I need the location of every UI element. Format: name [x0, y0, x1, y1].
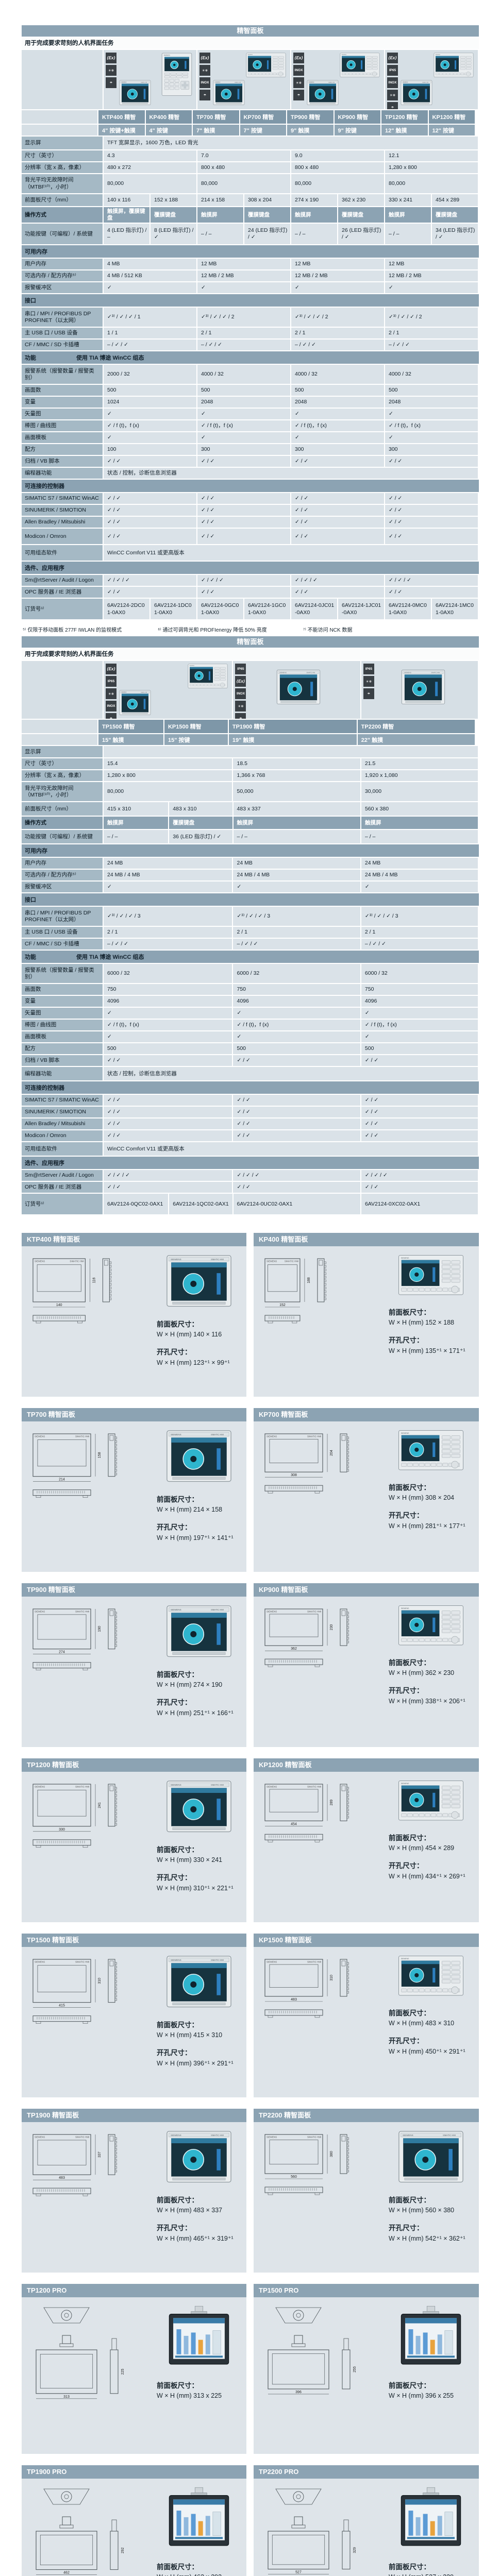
dimension-text: 前面板尺寸：W × H (mm) 396 x 255	[389, 2380, 454, 2399]
card-right-column: SIEMENS SIMATIC HMI 前面板尺寸：W × H (mm) 140…	[155, 1249, 242, 1394]
spec-cell: 覆膜键盘	[432, 207, 479, 223]
spec-row-label: OPC 服务器 / IE 浏览器	[22, 1182, 104, 1193]
cutout-size-value: W × H (mm) 197⁺¹ × 141⁺¹	[157, 1534, 234, 1541]
card-right-column: SIEMENS SIMATIC HMI 前面板尺寸：W × H (mm) 214…	[155, 1425, 242, 1569]
spec-cell: 800 x 480	[197, 162, 291, 173]
spec-cell: 6AV2124-0QC02-0AX1	[104, 1194, 169, 1214]
spec-cell: ✓ / ✓	[104, 1107, 233, 1117]
spec-cell: ✓ / ✓	[361, 1055, 479, 1066]
spec-cell: ✓³⁾ / ✓ / ✓ / 2	[197, 308, 291, 327]
ex-icon: ⟨Ex⟩	[235, 676, 246, 687]
spec-row-label: 前面板尺寸（mm）	[22, 194, 104, 206]
front-size-value: W × H (mm) 454 × 289	[389, 1844, 465, 1852]
cutout-size-label: 开孔尺寸：	[157, 1872, 234, 1882]
spec-cell: 80,000	[385, 174, 479, 193]
spec-row-label: 变量	[22, 996, 104, 1007]
spec-cell: ✓³⁾ / ✓ / ✓ / 2	[291, 308, 385, 327]
card-right-column: SIEMENS SIMATIC HMI 前面板尺寸：W × H (mm) 274…	[155, 1600, 242, 1744]
svg-text:330: 330	[59, 1828, 65, 1832]
table-subtitle: 用于完成要求苛刻的人机界面任务	[22, 38, 479, 50]
dimension-drawing: SIEMENS SIMATIC HMI 308 204	[257, 1425, 387, 1569]
spec-cell: ✓ / ✓	[197, 529, 291, 544]
humidity-icon: ☂	[387, 102, 398, 109]
spec-row-label: 报警缓冲区	[22, 282, 104, 293]
dimension-text: 前面板尺寸：W × H (mm) 214 × 158开孔尺寸：W × H (mm…	[157, 1494, 234, 1541]
spec-row: 画面模板✓✓✓	[22, 1031, 479, 1043]
panel-dimension-card: KP400 精智面板 SIEMENS SIMATIC HMI 152 188 S…	[254, 1233, 479, 1397]
panel-photo: SIEMENS SIMATIC HMI	[166, 1255, 232, 1310]
spec-cell: ✓	[385, 282, 479, 293]
spec-cell: 12 MB	[291, 259, 385, 269]
card-body: SIEMENS SIMATIC HMI 140 116 SIEMENS SIMA…	[22, 1246, 246, 1397]
spec-row: 操作方式触摸屏，覆膜键盘覆膜键盘触摸屏覆膜键盘触摸屏覆膜键盘触摸屏覆膜键盘	[22, 207, 479, 224]
spec-row-label: 归档 / VB 脚本	[22, 1055, 104, 1066]
spec-cell: ✓ / ✓	[104, 517, 197, 528]
cutout-size-value: W × H (mm) 310⁺¹ × 221⁺¹	[157, 1884, 234, 1892]
spec-cell: ✓ / f (t)，f (x)	[361, 1020, 479, 1030]
cutout-size-label: 开孔尺寸：	[389, 1510, 465, 1520]
svg-text:SIEMENS: SIEMENS	[403, 2134, 413, 2137]
spec-cell: ✓ / ✓	[104, 493, 197, 504]
spec-cell: 36 (LED 指示灯) / ✓	[169, 830, 233, 843]
spec-row-label: 报警系统（报警数量 / 报警类别）	[22, 964, 104, 983]
section-title: 功能	[22, 353, 36, 362]
svg-text:SIEMENS: SIEMENS	[403, 82, 408, 83]
spec-cell: ✓ / ✓	[291, 517, 385, 528]
ip65-icon: IP65	[235, 664, 246, 674]
spec-cell: 4096	[104, 996, 233, 1007]
svg-text:SIMATIC HMI: SIMATIC HMI	[307, 1611, 321, 1613]
spec-row-label: 串口 / MPI / PROFIBUS DP PROFINET（以太网）	[22, 907, 104, 926]
spec-row-label: SINUMERIK / SIMOTION	[22, 1107, 104, 1117]
spec-cell: 覆膜键盘	[338, 207, 385, 223]
spec-cell: 750	[361, 984, 479, 995]
svg-text:SIEMENS: SIEMENS	[215, 82, 221, 83]
svg-text:SIEMENS: SIEMENS	[164, 54, 171, 56]
svg-text:SIEMENS: SIEMENS	[401, 1783, 409, 1785]
model-name-cell: KP700 精智	[240, 110, 288, 124]
front-size-label: 前面板尺寸：	[157, 1494, 234, 1504]
model-name-cell: KP900 精智	[335, 110, 382, 124]
spec-row-label: OPC 服务器 / IE 浏览器	[22, 587, 104, 598]
spec-row: 主 USB 口 / USB 设备2 / 12 / 12 / 1	[22, 927, 479, 939]
spec-cell: 300	[197, 444, 291, 455]
card-right-column: SIEMENS 前面板尺寸：W × H (mm) 362 × 230开孔尺寸：W…	[387, 1600, 475, 1744]
front-size-label: 前面板尺寸：	[389, 2194, 465, 2205]
panel-photo-keyw: SIEMENS	[246, 53, 286, 77]
spec-row-label: 功能按键（可编程）/ 系统键	[22, 224, 104, 244]
spec-cell: 24 MB / 4 MB	[233, 870, 361, 880]
spec-cell: 4096	[233, 996, 361, 1007]
dimension-drawing: SIEMENS SIMATIC HMI 560 380	[257, 2125, 387, 2269]
svg-text:SIEMENS: SIEMENS	[190, 666, 195, 667]
cutout-size-label: 开孔尺寸：	[157, 1346, 230, 1357]
svg-text:462: 462	[63, 2571, 70, 2575]
card-right-column: 前面板尺寸：W × H (mm) 313 x 225	[155, 2300, 242, 2451]
spec-cell: 2 / 1	[104, 927, 233, 938]
inox-icon: INOX	[387, 77, 398, 88]
svg-text:SIEMENS: SIEMENS	[401, 1958, 409, 1960]
spec-cell: ✓³⁾ / ✓ / ✓ / 3	[233, 907, 361, 926]
model-type-cell: 7" 按键	[240, 125, 288, 135]
svg-text:SIEMENS: SIEMENS	[266, 1260, 277, 1263]
svg-text:SIMATIC HMI: SIMATIC HMI	[75, 1786, 89, 1788]
spec-cell: 状态 / 控制，诊断信息浏览器	[104, 1067, 479, 1080]
dimension-text: 前面板尺寸：W × H (mm) 483 × 310开孔尺寸：W × H (mm…	[389, 2007, 465, 2055]
type-row-label-spacer	[22, 734, 98, 745]
spec-cell: ✓	[104, 882, 233, 892]
card-right-column: 前面板尺寸：W × H (mm) 527 x 329	[387, 2482, 475, 2576]
front-size-label: 前面板尺寸：	[389, 2007, 465, 2018]
panel-dimension-card: KP900 精智面板 SIEMENS SIMATIC HMI 362 230 S…	[254, 1583, 479, 1747]
cutout-size-value: W × H (mm) 542⁺¹ × 362⁺¹	[389, 2234, 465, 2242]
spec-cell: 483 x 310	[169, 802, 233, 816]
panel-photo: SIEMENS SIMATIC HMI	[166, 2130, 232, 2185]
certification-badges: IP65⟨Ex⟩INOX☀❄☂	[235, 664, 246, 719]
spec-cell: 274 x 190	[291, 194, 338, 206]
spec-row-label: 可用组态软件	[22, 545, 104, 561]
spec-row-label: Modicon / Omron	[22, 529, 104, 544]
dimension-drawing: SIEMENS SIMATIC HMI 415 310	[25, 1950, 155, 2094]
spec-cell: ✓	[385, 432, 479, 443]
spec-cell: 500	[385, 385, 479, 396]
spec-cell: 4 (LED 指示灯) / –	[104, 224, 151, 244]
card-right-column: SIEMENS 前面板尺寸：W × H (mm) 483 × 310开孔尺寸：W…	[387, 1950, 475, 2094]
spec-row-label: 主 USB 口 / USB 设备	[22, 927, 104, 938]
svg-text:SIMATIC HMI: SIMATIC HMI	[141, 82, 147, 83]
svg-text:310: 310	[98, 1978, 102, 1984]
svg-text:190: 190	[98, 1626, 102, 1632]
spec-cell: 1,280 x 800	[104, 770, 233, 781]
card-right-column: 前面板尺寸：W × H (mm) 396 x 255	[387, 2300, 475, 2451]
card-body: 462 292 前面板尺寸：W × H (mm) 462 x 292	[22, 2479, 246, 2576]
svg-text:SIEMENS: SIEMENS	[342, 55, 347, 56]
svg-text:SIMATIC HMI: SIMATIC HMI	[211, 1258, 224, 1261]
spec-cell: 750	[233, 984, 361, 995]
spec-row: 尺寸（英寸）15.418.521.5	[22, 758, 479, 770]
dimension-drawing: 313 225	[25, 2300, 155, 2451]
spec-cell: 1 / 1	[104, 328, 197, 338]
spec-row: 画面数750750750	[22, 984, 479, 996]
card-title: KP900 精智面板	[254, 1583, 479, 1597]
spec-cell: ✓³⁾ / ✓ / ✓ / 1	[104, 308, 197, 327]
spec-cell: ✓ / ✓	[361, 1130, 479, 1141]
svg-text:313: 313	[63, 2395, 70, 2399]
card-body: SIEMENS SIMATIC HMI 560 380 SIEMENS SIMA…	[254, 2122, 479, 2273]
model-names-row: TP1500 精智KP1500 精智TP1900 精智TP2200 精智	[22, 720, 479, 734]
model-name-cell: TP1500 精智	[98, 720, 164, 733]
product-image-group: IP65⟨Ex⟩INOX☀❄☂ SIEMENS SIMATIC HMI	[233, 661, 361, 719]
spec-cell: ✓ / ✓	[104, 529, 197, 544]
spec-row-label: 背光平均无故障时间（MTBF¹⁰⁾，小时）	[22, 174, 104, 193]
spec-cell: ✓	[104, 432, 197, 443]
spec-cell: 480 x 272	[104, 162, 197, 173]
spec-cell: ✓ / ✓	[197, 587, 291, 598]
spec-cell: 6000 / 32	[104, 964, 233, 983]
spec-cell: ✓ / ✓ / ✓	[197, 575, 291, 586]
spec-row: SIMATIC S7 / SIMATIC WinAC✓ / ✓✓ / ✓✓ / …	[22, 1095, 479, 1107]
spec-cell: 触摸屏，覆膜键盘	[104, 207, 151, 223]
spec-cell: 24 (LED 指示灯) / ✓	[244, 224, 291, 244]
card-title: TP1200 PRO	[22, 2284, 246, 2297]
spec-cell: 24 MB / 4 MB	[104, 870, 233, 880]
spec-cell: WinCC Comfort V11 或更高版本	[104, 545, 479, 561]
front-size-label: 前面板尺寸：	[389, 1657, 465, 1667]
spec-cell: ✓ / ✓	[291, 493, 385, 504]
svg-text:158: 158	[98, 1452, 102, 1459]
panel-photo: SIEMENS SIMATIC HMI	[166, 1955, 232, 2010]
panel-dimension-card: TP900 精智面板 SIEMENS SIMATIC HMI 274 190 S…	[22, 1583, 246, 1747]
spec-row-label: Modicon / Omron	[22, 1130, 104, 1141]
panel-photo-keyw: SIEMENS	[188, 664, 228, 688]
card-body: SIEMENS SIMATIC HMI 415 310 SIEMENS SIMA…	[22, 1947, 246, 2097]
dimension-drawing: 396 255	[257, 2300, 387, 2451]
cutout-size-label: 开孔尺寸：	[157, 2222, 234, 2232]
table-title: 精智面板	[22, 636, 479, 649]
spec-row-label: 主 USB 口 / USB 设备	[22, 328, 104, 338]
spec-cell: ✓ / ✓	[104, 1118, 233, 1129]
spec-cell: 362 x 230	[338, 194, 385, 206]
svg-text:SIEMENS: SIEMENS	[171, 1784, 181, 1786]
catalog-page: 精智面板用于完成要求苛刻的人机界面任务⟨Ex⟩☀❄☂ SIEMENS SIMAT…	[22, 25, 479, 2576]
spec-row-label: 分辨率（宽 x 高，像素）	[22, 162, 104, 173]
spec-cell: 2048	[291, 397, 385, 408]
spec-cell: 2 / 1	[197, 328, 291, 338]
spec-cell: ✓ / ✓	[385, 517, 479, 528]
spec-row: 矢量图✓✓✓✓	[22, 409, 479, 420]
product-images-row: ⟨Ex⟩IP65☀❄INOX☂ SIEMENS SIMATIC HMI SIEM…	[22, 661, 479, 720]
spec-cell: ✓ / ✓	[233, 1130, 361, 1141]
spec-cell: ✓ / f (t)，f (x)	[291, 420, 385, 431]
section-text: 使用 TIA 博途 WinCC 组态	[36, 353, 144, 362]
front-size-value: W × H (mm) 152 × 188	[389, 1319, 465, 1326]
spec-row: OPC 服务器 / IE 浏览器✓ / ✓✓ / ✓✓ / ✓	[22, 1182, 479, 1194]
spec-cell: ✓ / ✓	[385, 493, 479, 504]
ex-icon: ⟨Ex⟩	[106, 664, 116, 674]
section-title: 接口	[22, 895, 36, 904]
model-type-cell: 22" 触摸	[358, 734, 476, 745]
spec-cell: – / –	[291, 224, 338, 244]
table-subtitle: 用于完成要求苛刻的人机界面任务	[22, 649, 479, 661]
spec-cell: ✓	[233, 1008, 361, 1019]
spec-cell: ✓ / ✓	[291, 456, 385, 467]
section-title: 可连接的控制器	[22, 482, 64, 490]
spec-cell: 50,000	[233, 782, 361, 801]
spec-row: 订货号¹⁾6AV2124-0QC02-0AX16AV2124-1QC02-0AX…	[22, 1194, 479, 1215]
spec-row-label: 操作方式	[22, 817, 104, 829]
spec-row: Modicon / Omron✓ / ✓✓ / ✓✓ / ✓	[22, 1130, 479, 1142]
dimension-text: 前面板尺寸：W × H (mm) 560 × 380开孔尺寸：W × H (mm…	[389, 2194, 465, 2242]
svg-text:214: 214	[59, 1478, 65, 1482]
spec-cell: ✓ / ✓	[197, 456, 291, 467]
spec-cell: 6AV2124-1QC02-0AX1	[169, 1194, 233, 1214]
climate-icon: ☀❄	[293, 77, 304, 88]
svg-text:SIEMENS: SIEMENS	[171, 1258, 181, 1261]
cutout-size-value: W × H (mm) 281⁺¹ × 177⁺¹	[389, 1522, 465, 1530]
section-header-row: 功能使用 TIA 博途 WinCC 组态	[22, 951, 479, 964]
cutout-size-label: 开孔尺寸：	[157, 2047, 234, 2057]
section-header-row: 选件、应用程序	[22, 1157, 479, 1170]
svg-text:SIEMENS: SIEMENS	[404, 671, 411, 673]
cutout-size-value: W × H (mm) 123⁺¹ × 99⁺¹	[157, 1359, 230, 1366]
spec-row-label: 配方	[22, 1043, 104, 1054]
spec-cell: 500	[233, 1043, 361, 1054]
model-type-cell: 19" 触摸	[229, 734, 358, 745]
spec-cell: 6AV2124-0UC02-0AX1	[234, 1194, 361, 1214]
section-title: 接口	[22, 296, 36, 304]
ip65-icon: IP65	[387, 65, 398, 76]
spec-cell: ✓ / ✓ / ✓	[385, 575, 479, 586]
model-name-cell: TP2200 精智	[358, 720, 476, 733]
svg-text:SIMATIC HMI: SIMATIC HMI	[285, 1260, 298, 1263]
spec-cell: 覆膜键盘	[169, 817, 233, 829]
spec-row: Modicon / Omron✓ / ✓✓ / ✓✓ / ✓✓ / ✓	[22, 529, 479, 545]
svg-text:SIEMENS: SIEMENS	[121, 82, 127, 83]
spec-row: 功能按键（可编程）/ 系统键– / –36 (LED 指示灯) / ✓– / –…	[22, 830, 479, 844]
spec-cell: ✓	[233, 1031, 361, 1042]
card-title: TP900 精智面板	[22, 1583, 246, 1597]
svg-text:SIMATIC HMI: SIMATIC HMI	[307, 1435, 321, 1438]
cutout-size-label: 开孔尺寸：	[157, 1521, 234, 1532]
card-title: TP1200 精智面板	[22, 1758, 246, 1772]
spec-row: 前面板尺寸（mm）415 x 310483 x 310483 x 337560 …	[22, 802, 479, 817]
spec-cell: ✓ / ✓	[291, 529, 385, 544]
card-body: SIEMENS SIMATIC HMI 274 190 SIEMENS SIMA…	[22, 1597, 246, 1747]
svg-text:SIEMENS: SIEMENS	[35, 1786, 45, 1788]
panel-dimension-card: TP1900 PRO 462 292 前面板尺寸：W × H (mm) 462 …	[22, 2465, 246, 2576]
spec-cell: 6AV2124-1GC01-0AX0	[244, 599, 291, 619]
front-size-label: 前面板尺寸：	[157, 2380, 222, 2390]
svg-text:380: 380	[330, 2151, 334, 2157]
spec-row: 可选内存 / 配方内存⁶⁾24 MB / 4 MB24 MB / 4 MB24 …	[22, 870, 479, 882]
panel-photo-touch: SIEMENS SIMATIC HMI	[401, 669, 445, 715]
svg-text:140: 140	[56, 1303, 62, 1307]
spec-cell: ✓ / ✓	[385, 505, 479, 516]
spec-cell: ✓	[197, 409, 291, 419]
svg-text:SIEMENS: SIEMENS	[121, 692, 127, 693]
climate-icon: ☀❄	[387, 90, 398, 100]
spec-row: 背光平均无故障时间（MTBF¹⁰⁾，小时）80,00050,00030,000	[22, 782, 479, 802]
svg-text:SIMATIC HMI: SIMATIC HMI	[75, 1611, 89, 1613]
card-body: SIEMENS SIMATIC HMI 454 289 SIEMENS 前面板尺…	[254, 1772, 479, 1922]
spec-cell: 26 (LED 指示灯) / ✓	[338, 224, 385, 244]
spec-cell: 2048	[197, 397, 291, 408]
panel-photo: SIEMENS SIMATIC HMI	[398, 2130, 464, 2185]
spec-cell: ✓ / ✓	[197, 517, 291, 528]
card-body: SIEMENS SIMATIC HMI 152 188 SIEMENS 前面板尺…	[254, 1246, 479, 1397]
spec-tables: 精智面板用于完成要求苛刻的人机界面任务⟨Ex⟩☀❄☂ SIEMENS SIMAT…	[22, 25, 479, 1215]
svg-text:289: 289	[330, 1800, 334, 1806]
spec-row: 尺寸（英寸）4.37.09.012.1	[22, 150, 479, 162]
panel-photo-touch: SIEMENS SIMATIC HMI	[401, 80, 432, 106]
humidity-icon: ☂	[106, 77, 116, 88]
spec-cell: ✓	[233, 882, 361, 892]
spec-cell: 15.4	[104, 758, 233, 769]
front-size-label: 前面板尺寸：	[389, 1307, 465, 1317]
spec-row-label: 棒图 / 曲线图	[22, 420, 104, 431]
spec-row-label: 可选内存 / 配方内存⁶⁾	[22, 870, 104, 880]
spec-cell: 触摸屏	[104, 817, 169, 829]
svg-text:SIEMENS: SIEMENS	[266, 1611, 277, 1613]
humidity-icon: ☂	[293, 90, 304, 100]
dimension-cards-grid: KTP400 精智面板 SIEMENS SIMATIC HMI 140 116 …	[22, 1233, 479, 2576]
spec-cell: 2 / 1	[291, 328, 385, 338]
spec-row-label: 可选内存 / 配方内存⁶⁾	[22, 270, 104, 281]
spec-row: 用户内存24 MB24 MB24 MB	[22, 858, 479, 870]
spec-cell: ✓	[291, 282, 385, 293]
spec-cell: ✓ / ✓	[291, 505, 385, 516]
ip65-icon: IP65	[363, 664, 374, 674]
spec-row-label: SIMATIC S7 / SIMATIC WinAC	[22, 1095, 104, 1106]
spec-cell: ✓ / ✓ / ✓	[104, 1170, 233, 1181]
spec-cell: 4000 / 32	[197, 365, 291, 384]
ex-icon: ⟨Ex⟩	[199, 53, 210, 63]
inox-icon: INOX	[235, 688, 246, 699]
model-names-row: KTP400 精智KP400 精智TP700 精智KP700 精智TP900 精…	[22, 110, 479, 125]
svg-text:SIMATIC HMI: SIMATIC HMI	[307, 2136, 321, 2139]
svg-text:SIMATIC HMI: SIMATIC HMI	[431, 671, 440, 673]
spec-row: 归档 / VB 脚本✓ / ✓✓ / ✓✓ / ✓✓ / ✓	[22, 456, 479, 468]
spec-cell: – / ✓ / ✓	[233, 939, 361, 950]
images-row-label-spacer	[22, 661, 104, 719]
spec-row-label: 串口 / MPI / PROFIBUS DP PROFINET（以太网）	[22, 308, 104, 327]
spec-cell: 1024	[104, 397, 197, 408]
svg-text:483: 483	[59, 2176, 65, 2180]
panel-photo-touch: SIEMENS SIMATIC HMI	[119, 80, 151, 106]
spec-row-label: 画面模板	[22, 432, 104, 443]
spec-row: 可用组态软件WinCC Comfort V11 或更高版本	[22, 545, 479, 562]
spec-row-label: SIMATIC S7 / SIMATIC WinAC	[22, 493, 104, 504]
front-size-value: W × H (mm) 330 × 241	[157, 1856, 234, 1863]
svg-text:SIEMENS: SIEMENS	[248, 55, 253, 56]
spec-cell: ✓ / ✓	[385, 587, 479, 598]
svg-text:SIEMENS: SIEMENS	[35, 1435, 45, 1438]
footnote-text: ⁶⁾ 通过可调背光和 PROFIenergy 降低 50% 亮度	[158, 625, 267, 633]
dimension-drawing: SIEMENS SIMATIC HMI 140 116	[25, 1249, 155, 1394]
svg-text:204: 204	[330, 1450, 334, 1456]
section-title: 功能	[22, 953, 36, 961]
product-image-group: ⟨Ex⟩☀❄☂ SIEMENS SIMATIC HMI SIEMENS	[104, 50, 197, 109]
front-size-value: W × H (mm) 462 x 292	[157, 2573, 222, 2576]
model-name-cell: KP1200 精智	[429, 110, 476, 124]
spec-row-label: 可用组态软件	[22, 1142, 104, 1156]
spec-cell: ✓	[197, 432, 291, 443]
panel-photos: SIEMENS SIMATIC HMI SIEMENS	[104, 50, 196, 109]
spec-row: 画面数500500500500	[22, 385, 479, 397]
svg-text:SIEMENS: SIEMENS	[266, 1435, 277, 1438]
panel-photo: SIEMENS	[398, 1605, 464, 1649]
spec-cell: ✓ / f (t)，f (x)	[233, 1020, 361, 1030]
section-title: 选件、应用程序	[22, 564, 64, 572]
spec-cell: 12 MB / 2 MB	[197, 270, 291, 281]
card-title: TP1900 精智面板	[22, 2109, 246, 2122]
panel-photo-keytall: SIEMENS	[161, 53, 192, 96]
spec-cell: ✓	[104, 1008, 233, 1019]
front-size-label: 前面板尺寸：	[157, 1669, 234, 1679]
spec-cell: ✓ / f (t)，f (x)	[104, 1020, 233, 1030]
spec-row: 矢量图✓✓✓	[22, 1008, 479, 1020]
svg-text:527: 527	[295, 2571, 302, 2574]
certification-badges: ⟨Ex⟩INOX☀❄☂	[293, 53, 304, 100]
card-body: 313 225 前面板尺寸：W × H (mm) 313 x 225	[22, 2297, 246, 2454]
spec-cell: 100	[104, 444, 197, 455]
section-header-row: 可用内存	[22, 844, 479, 858]
panel-photo: SIEMENS	[398, 1255, 464, 1298]
spec-row-label: CF / MMC / SD 卡插槽	[22, 340, 104, 350]
spec-row: 配方500500500	[22, 1043, 479, 1055]
spec-cell: 500	[104, 385, 197, 396]
spec-row-label: 编程器功能	[22, 468, 104, 479]
